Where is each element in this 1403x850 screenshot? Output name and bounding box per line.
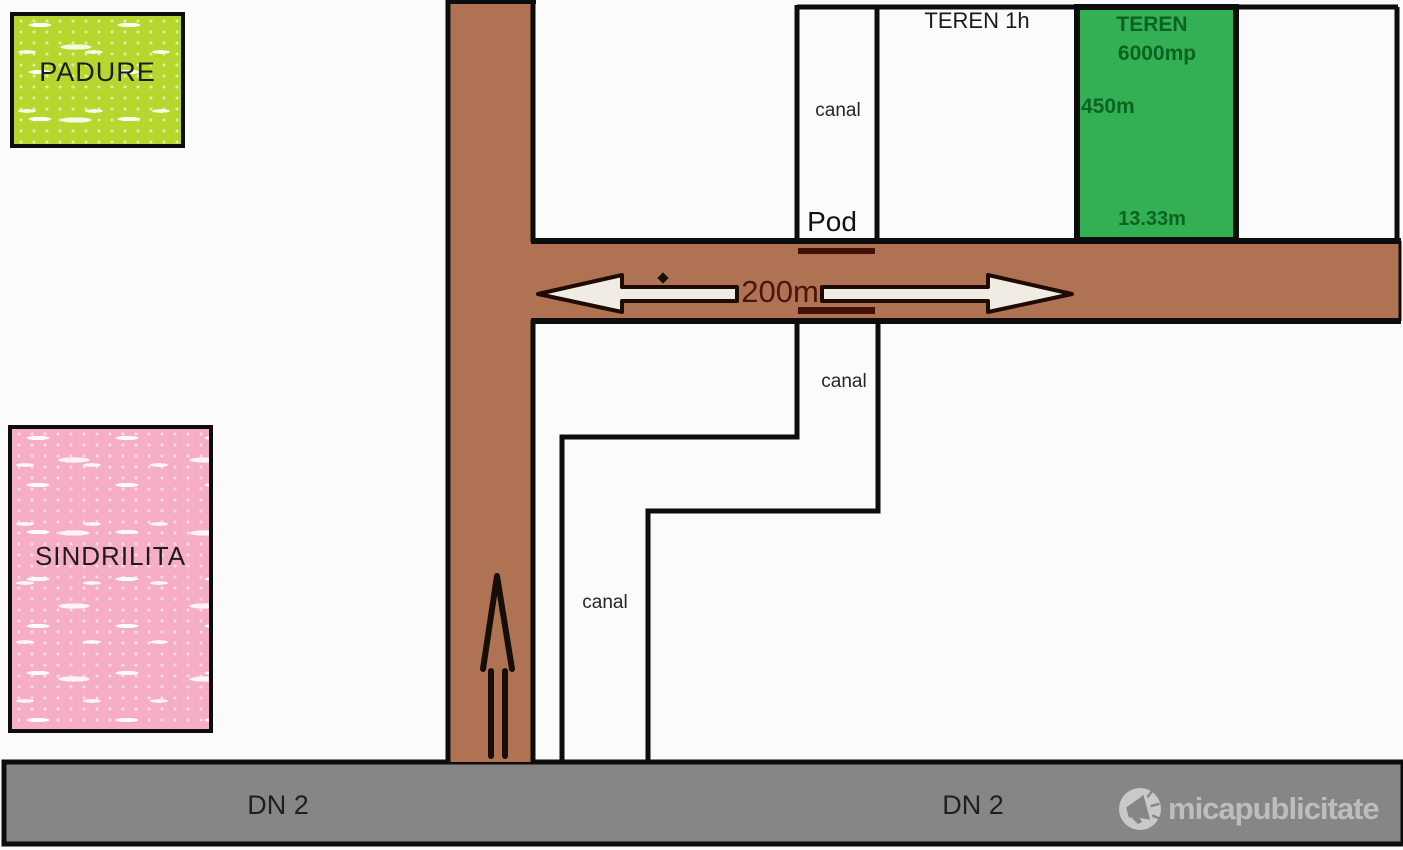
location-sketch: PADURE SINDRILITA: [0, 0, 1403, 850]
road-distance-label: 200m: [738, 274, 822, 310]
green-parcel-title: TEREN: [1077, 13, 1227, 37]
lower-canal-left-boundary: [562, 321, 797, 760]
sketch-linework: [0, 0, 1403, 850]
highway-label-left: DN 2: [198, 790, 358, 821]
bridge-label: Pod: [792, 206, 872, 238]
bridge-bar-top: [798, 248, 875, 254]
green-parcel-area: 6000mp: [1077, 42, 1237, 66]
vertical-road: [450, 2, 531, 762]
highway-label-right: DN 2: [893, 790, 1053, 821]
canal-label-top: canal: [799, 100, 877, 122]
canal-label-lower: canal: [566, 592, 644, 614]
green-parcel-width: 13.33m: [1077, 208, 1227, 231]
parcel-1h-label: TEREN 1h: [897, 8, 1057, 34]
canal-label-middle: canal: [805, 371, 883, 393]
green-parcel-length: 450m: [1081, 95, 1135, 119]
watermark-brand: micapublicitate: [1168, 791, 1379, 827]
